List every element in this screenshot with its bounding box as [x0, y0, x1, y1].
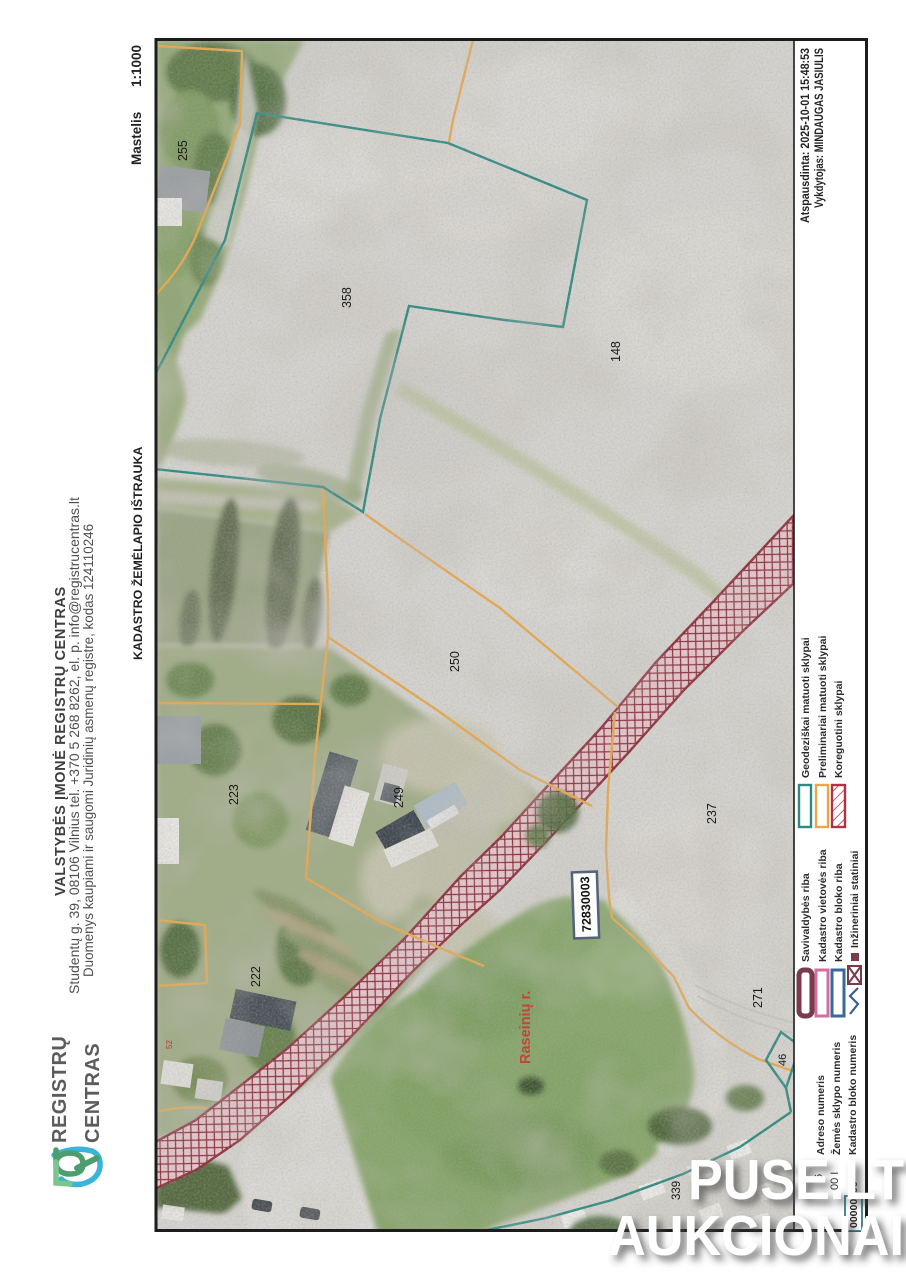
svg-text:Kadastro bloko numeris: Kadastro bloko numeris: [847, 1035, 859, 1155]
svg-text:Duomenys kaupiami ir saugomi J: Duomenys kaupiami ir saugomi Juridinių a…: [81, 524, 96, 977]
svg-text:271: 271: [751, 987, 765, 1008]
svg-text:52: 52: [165, 1040, 174, 1049]
svg-text:72830003: 72830003: [578, 876, 594, 932]
svg-text:Žemės sklypo numeris: Žemės sklypo numeris: [830, 1042, 843, 1155]
svg-text:Koreguotini sklypai: Koreguotini sklypai: [833, 680, 845, 778]
svg-text:255: 255: [176, 140, 190, 161]
svg-text:237: 237: [705, 803, 719, 824]
svg-text:Kadastro vietovės riba: Kadastro vietovės riba: [817, 849, 829, 962]
svg-text:Studentų g. 39, 08106 Vilnius: Studentų g. 39, 08106 Vilnius tel. +370 …: [66, 497, 82, 994]
svg-text:AUKCIONAI: AUKCIONAI: [608, 1204, 904, 1268]
svg-text:148: 148: [609, 341, 623, 362]
svg-text:1:1000: 1:1000: [129, 45, 144, 87]
svg-text:REGISTRŲ: REGISTRŲ: [49, 1036, 71, 1143]
svg-text:223: 223: [227, 784, 241, 805]
svg-text:339: 339: [671, 1181, 683, 1200]
svg-text:Adreso numeris: Adreso numeris: [815, 1075, 827, 1155]
svg-text:KADASTRO ŽEMĖLAPIO IŠTRAUKA: KADASTRO ŽEMĖLAPIO IŠTRAUKA: [130, 447, 145, 660]
svg-text:249: 249: [392, 787, 406, 808]
svg-text:Kadastro bloko riba: Kadastro bloko riba: [833, 863, 845, 962]
svg-text:CENTRAS: CENTRAS: [82, 1043, 104, 1143]
svg-text:250: 250: [448, 651, 462, 672]
svg-text:Preliminariai matuoti sklypai: Preliminariai matuoti sklypai: [817, 636, 829, 778]
svg-text:222: 222: [249, 966, 263, 987]
svg-text:Vykdytojas: MINDAUGAS JASIULIS: Vykdytojas: MINDAUGAS JASIULIS: [814, 48, 826, 208]
svg-text:Geodeziškai matuoti sklypai: Geodeziškai matuoti sklypai: [800, 637, 812, 778]
svg-text:358: 358: [340, 287, 354, 308]
svg-text:Mastelis: Mastelis: [129, 112, 144, 165]
svg-text:PUSE.LT: PUSE.LT: [688, 1148, 904, 1212]
svg-text:Raseinių r.: Raseinių r.: [518, 991, 534, 1064]
svg-text:Savivaldybės riba: Savivaldybės riba: [800, 873, 812, 962]
svg-text:Atspausdinta: 2025-10-01 15:48: Atspausdinta: 2025-10-01 15:48:53: [800, 48, 812, 223]
svg-text:46: 46: [777, 1054, 789, 1066]
svg-text:Inžineriniai statiniai: Inžineriniai statiniai: [849, 850, 861, 948]
